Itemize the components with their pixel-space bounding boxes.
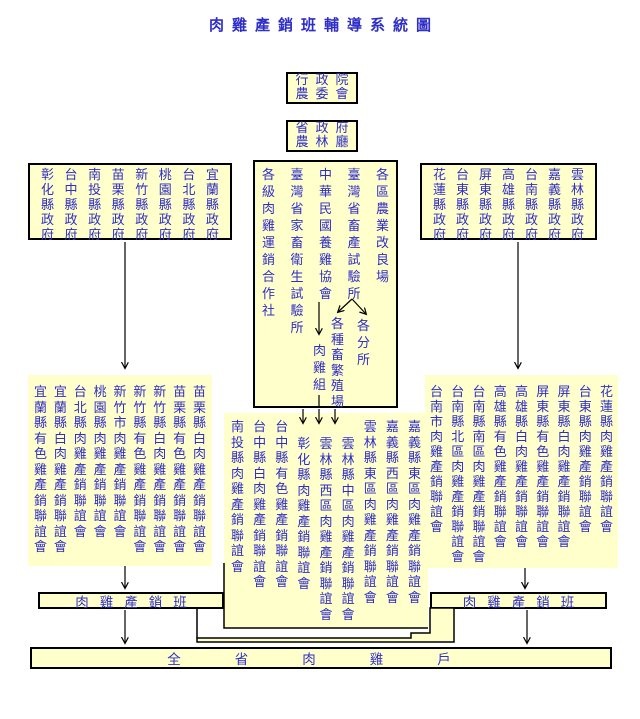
vertical-label: 雲林縣西區肉雞產銷聯誼會 — [319, 437, 334, 623]
vertical-label: 新竹縣白肉雞產銷聯誼會 — [152, 385, 167, 556]
vertical-label: 彰化縣政府 — [40, 168, 55, 243]
vertical-label: 屏東縣政府 — [478, 168, 493, 243]
vertical-label: 高雄縣政府 — [501, 168, 516, 243]
association-columns-left: 宜蘭縣有色雞產銷聯誼會宜蘭縣白肉雞產銷聯誼會台北縣肉雞產銷聯誼會桃園縣肉雞產銷聯… — [28, 375, 212, 566]
vertical-label: 台北縣肉雞產銷聯誼會 — [73, 385, 88, 540]
box-production-class-left: 肉雞產銷班 — [38, 592, 224, 609]
vertical-label: 雲林縣東區肉雞產銷聯誼會 — [363, 420, 378, 606]
label-broiler-section: 肉雞組 — [312, 343, 327, 394]
vertical-label: 各區農業改良場 — [375, 167, 390, 286]
vertical-label: 台北縣政府 — [181, 168, 196, 243]
county-gov-columns-west: 彰化縣政府台中縣政府南投縣政府苗栗縣政府新竹縣政府桃園縣政府台北縣政府宜蘭縣政府 — [30, 165, 230, 238]
vertical-label: 宜蘭縣政府 — [205, 168, 220, 243]
box-province-line2: 農林廳 — [288, 136, 355, 150]
vertical-label: 台南市肉雞產銷聯誼會 — [429, 385, 444, 535]
diagram-canvas: 肉雞產銷班輔導系統圖 行政院 農委會 省政府 農林廳 彰化縣政府台中縣政府南投縣… — [0, 0, 640, 719]
box-council-line2: 農委會 — [288, 88, 355, 102]
vertical-label: 嘉義縣政府 — [547, 168, 562, 243]
vertical-label: 雲林縣政府 — [570, 168, 585, 243]
vertical-label: 新竹縣政府 — [134, 168, 149, 243]
vertical-label: 中華民國養雞協會 — [318, 167, 333, 303]
vertical-label: 新竹市肉雞產銷聯誼會 — [113, 385, 128, 540]
box-provincial-agriculture-dept: 省政府 農林廳 — [286, 120, 358, 152]
vertical-label: 宜蘭縣白肉雞產銷聯誼會 — [53, 385, 68, 556]
vertical-label: 雲林縣中區肉雞產銷聯誼會 — [341, 437, 356, 623]
vertical-label: 台東縣政府 — [455, 168, 470, 243]
vertical-label: 桃園縣政府 — [158, 168, 173, 243]
box-province-line1: 省政府 — [288, 122, 355, 136]
vertical-label: 台東縣肉雞產銷聯誼會 — [578, 385, 593, 535]
vertical-label: 苗栗縣政府 — [111, 168, 126, 243]
vertical-label: 南投縣政府 — [87, 168, 102, 243]
box-county-governments-east: 花蓮縣政府台東縣政府屏東縣政府高雄縣政府台南縣政府嘉義縣政府雲林縣政府 — [420, 163, 597, 240]
region-associations-left: 宜蘭縣有色雞產銷聯誼會宜蘭縣白肉雞產銷聯誼會台北縣肉雞產銷聯誼會桃園縣肉雞產銷聯… — [28, 375, 212, 566]
box-council-of-agriculture: 行政院 農委會 — [286, 72, 358, 104]
vertical-label: 高雄縣有色雞產銷聯誼會 — [493, 385, 508, 550]
vertical-label: 宜蘭縣有色雞產銷聯誼會 — [33, 385, 48, 556]
vertical-label: 苗栗縣有色雞產銷聯誼會 — [172, 385, 187, 556]
bottom-box-label: 全省肉雞戶 — [137, 648, 505, 668]
vertical-label: 台南縣南區肉雞產銷聯誼會 — [472, 385, 487, 565]
vertical-label: 台中縣有色雞產銷聯誼會 — [274, 420, 289, 591]
vertical-label: 臺灣省家畜衛生試驗所 — [290, 167, 305, 337]
vertical-label: 台南縣政府 — [524, 168, 539, 243]
box-production-class-right: 肉雞產銷班 — [430, 592, 607, 609]
page-title: 肉雞產銷班輔導系統圖 — [0, 14, 640, 35]
label-breeding-stations: 各種畜繁殖場 — [330, 317, 345, 410]
association-columns-center: 南投縣肉雞產銷聯誼會台中縣白肉雞產銷聯誼會台中縣有色雞產銷聯誼會彰化縣肉雞產銷聯… — [224, 413, 428, 628]
box-county-governments-west: 彰化縣政府台中縣政府南投縣政府苗栗縣政府新竹縣政府桃園縣政府台北縣政府宜蘭縣政府 — [28, 163, 232, 240]
vertical-label: 桃園縣肉雞產銷聯誼會 — [93, 385, 108, 540]
vertical-label: 屏東縣有色雞產銷聯誼會 — [535, 385, 550, 550]
region-associations-center: 南投縣肉雞產銷聯誼會台中縣白肉雞產銷聯誼會台中縣有色雞產銷聯誼會彰化縣肉雞產銷聯… — [224, 413, 428, 628]
region-associations-right: 台南市肉雞產銷聯誼會台南縣北區肉雞產銷聯誼會台南縣南區肉雞產銷聯誼會高雄縣有色雞… — [425, 375, 618, 568]
vertical-label: 嘉義縣東區肉雞產銷聯誼會 — [407, 420, 422, 606]
vertical-label: 苗栗縣白肉雞產銷聯誼會 — [192, 385, 207, 556]
vertical-label: 花蓮縣政府 — [432, 168, 447, 243]
vertical-label: 彰化縣肉雞產銷聯誼會 — [296, 437, 311, 592]
vertical-label: 各級肉雞運銷合作社 — [261, 167, 276, 320]
vertical-label: 屏東縣白肉雞產銷聯誼會 — [557, 385, 572, 550]
vertical-label: 高雄縣白肉雞產銷聯誼會 — [514, 385, 529, 550]
county-gov-columns-east: 花蓮縣政府台東縣政府屏東縣政府高雄縣政府台南縣政府嘉義縣政府雲林縣政府 — [422, 165, 595, 238]
vertical-label: 南投縣肉雞產銷聯誼會 — [230, 420, 245, 575]
vertical-label: 臺灣省畜產試驗所 — [347, 167, 362, 303]
vertical-label: 新竹縣有色雞產銷聯誼會 — [132, 385, 147, 556]
production-class-left-label: 肉雞產銷班 — [64, 591, 198, 611]
box-province-wide-broiler-households: 全省肉雞戶 — [30, 647, 612, 669]
vertical-label: 台中縣白肉雞產銷聯誼會 — [252, 420, 267, 591]
vertical-label: 台南縣北區肉雞產銷聯誼會 — [450, 385, 465, 565]
association-columns-right: 台南市肉雞產銷聯誼會台南縣北區肉雞產銷聯誼會台南縣南區肉雞產銷聯誼會高雄縣有色雞… — [425, 375, 618, 568]
vertical-label: 台中縣政府 — [64, 168, 79, 243]
vertical-label: 花蓮縣肉雞產銷聯誼會 — [599, 385, 614, 535]
vertical-label: 嘉義縣西區肉雞產銷聯誼會 — [385, 420, 400, 606]
label-branch-offices: 各分所 — [356, 318, 371, 369]
box-council-line1: 行政院 — [288, 74, 355, 88]
production-class-right-label: 肉雞產銷班 — [452, 591, 586, 611]
